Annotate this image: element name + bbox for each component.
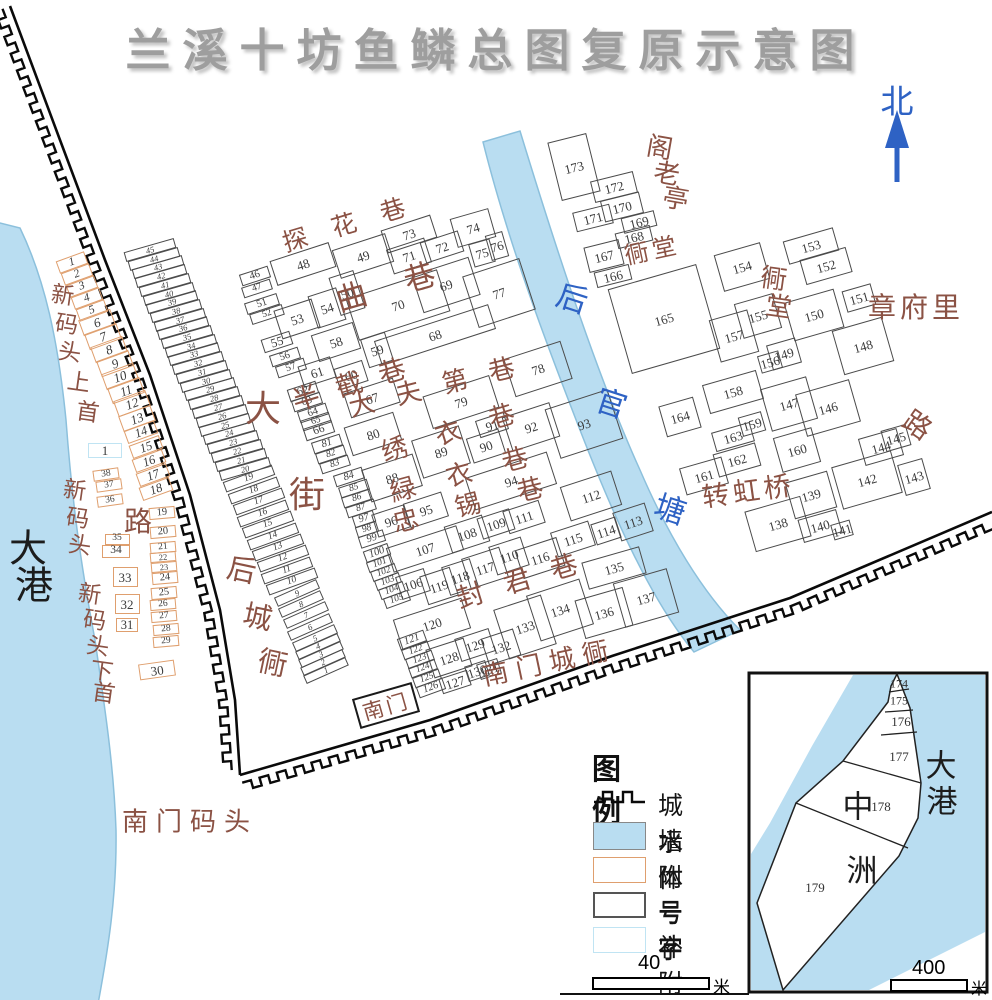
inset-parcel-174: 174 bbox=[890, 677, 908, 692]
legend-water-swatch bbox=[593, 822, 646, 850]
label-dagang-2: 港 bbox=[15, 555, 53, 610]
street-houcheng-tong-3: 衕 bbox=[254, 637, 291, 684]
label-zhangfuli: 章府里 bbox=[868, 286, 964, 326]
inset-dagang-2: 港 bbox=[927, 777, 958, 822]
inset-parcel-178: 178 bbox=[871, 799, 891, 815]
street-houcheng-tong-2: 城 bbox=[239, 591, 276, 638]
label-road-right: 路 bbox=[895, 400, 941, 449]
street-tanhua-lane: 探花巷 bbox=[278, 180, 435, 259]
map-canvas: 兰溪十坊鱼鳞总图复原示意图 45444342414039383736353433… bbox=[0, 0, 992, 1000]
label-nanmen-matou: 南门码头 bbox=[122, 802, 258, 839]
river-houguantang-1: 后 bbox=[551, 270, 594, 322]
map-labels-layer: 北探花巷曲巷大街半截巷大夫第巷绣衣巷緑衣巷忠锡巷封君巷南门城衕后城衕新码头上首新… bbox=[0, 0, 992, 1000]
street-nanmencheng-tong: 南门城衕 bbox=[479, 629, 620, 693]
scalebar-main bbox=[592, 977, 710, 990]
inset-parcel-176: 176 bbox=[891, 714, 911, 730]
street-da-jie-2: 街 bbox=[289, 466, 325, 518]
label-zhuanhongqiao: 转虹桥 bbox=[699, 463, 797, 515]
label-gelaoting-3: 亭 bbox=[660, 177, 692, 218]
label-xinmatou-3: 头 bbox=[66, 525, 94, 562]
scalebar-inset bbox=[890, 979, 968, 992]
scalebar-main-unit: 米 bbox=[713, 973, 730, 998]
scalebar-main-value: 40 bbox=[638, 952, 660, 975]
inset-parcel-177: 177 bbox=[889, 749, 909, 765]
legend-wall-icon bbox=[593, 786, 646, 808]
river-houguantang-2: 官 bbox=[590, 375, 633, 427]
legend-orange-swatch bbox=[593, 857, 646, 883]
north-label: 北 bbox=[881, 75, 914, 123]
label-xinmatou-xiashou-5: 首 bbox=[90, 673, 118, 710]
inset-zhongzhou-2: 洲 bbox=[847, 846, 878, 891]
street-fengjun-lane: 封君巷 bbox=[451, 536, 603, 616]
street-qu-lane: 曲巷 bbox=[330, 238, 479, 320]
label-xinmatou-shangshou-5: 首 bbox=[74, 392, 102, 429]
scalebar-inset-value: 400 bbox=[912, 957, 945, 980]
legend-black-swatch bbox=[593, 892, 646, 918]
inset-zhongzhou-1: 中 bbox=[843, 782, 874, 827]
label-road-left: 路 bbox=[124, 500, 152, 540]
street-da-jie-1: 大 bbox=[245, 380, 281, 432]
scalebar-inset-unit: 米 bbox=[971, 975, 987, 999]
street-houcheng-tong-1: 后 bbox=[223, 544, 260, 591]
label-tongtang-upper: 衕堂 bbox=[621, 225, 683, 271]
legend-cyan-swatch bbox=[593, 927, 646, 953]
river-houguantang-3: 塘 bbox=[649, 481, 692, 533]
inset-parcel-175: 175 bbox=[890, 694, 908, 709]
inset-parcel-179: 179 bbox=[805, 880, 825, 896]
label-tongtang-right-2: 堂 bbox=[764, 285, 795, 325]
